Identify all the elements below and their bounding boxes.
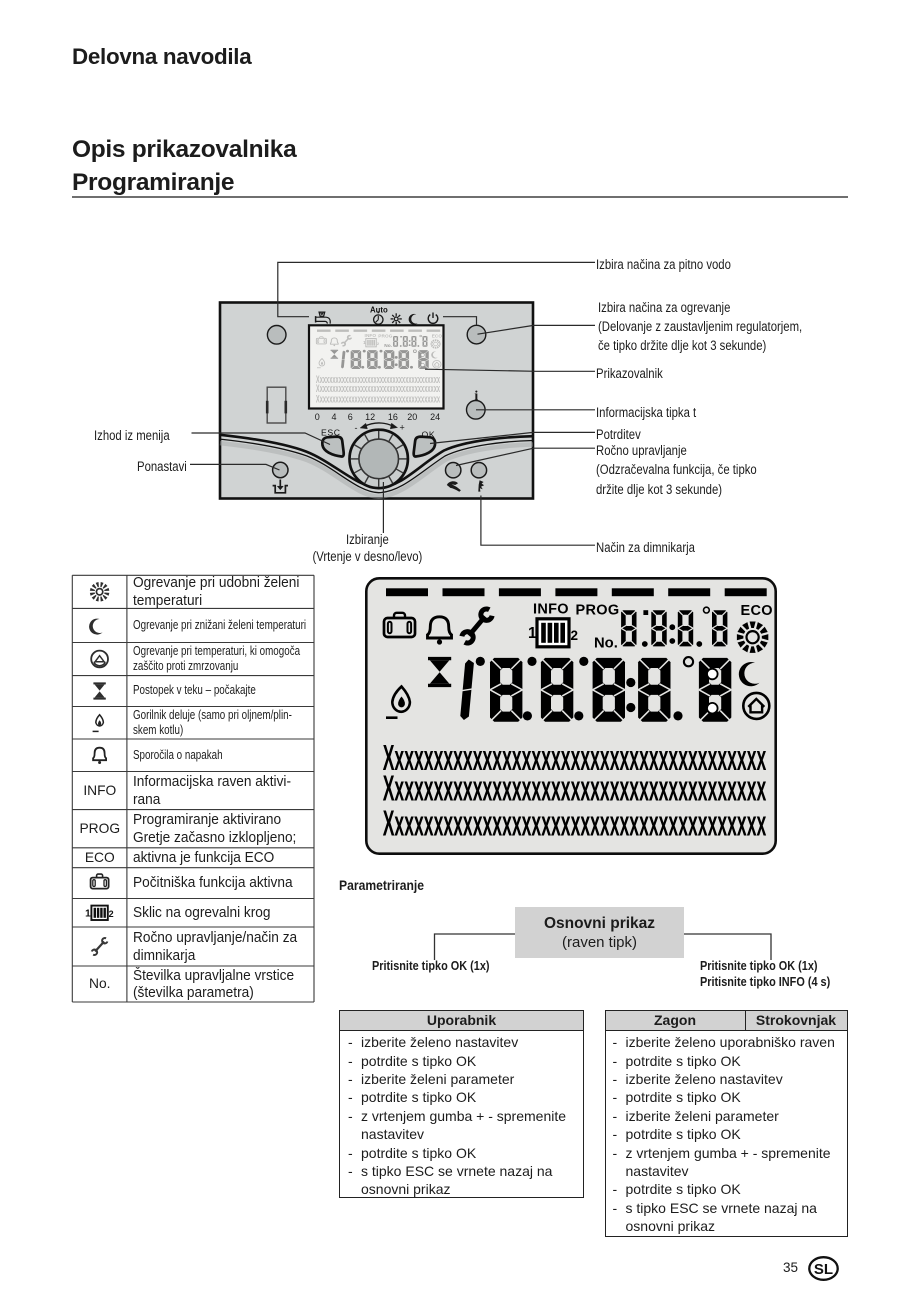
svg-text:PROG: PROG: [575, 602, 619, 618]
svg-text:2: 2: [570, 627, 578, 642]
svg-text:INFO: INFO: [533, 601, 569, 617]
svg-text:SL: SL: [814, 1261, 833, 1278]
svg-text:Xxxxxxxxxxxxxxxxxxxxxxxxxxxxxx: Xxxxxxxxxxxxxxxxxxxxxxxxxxxxxxxxxxxxxxx: [382, 802, 766, 843]
svg-text:No.: No.: [594, 635, 618, 651]
svg-text:2: 2: [109, 909, 114, 919]
svg-text:ECO: ECO: [740, 603, 772, 619]
svg-text:1: 1: [85, 909, 91, 920]
